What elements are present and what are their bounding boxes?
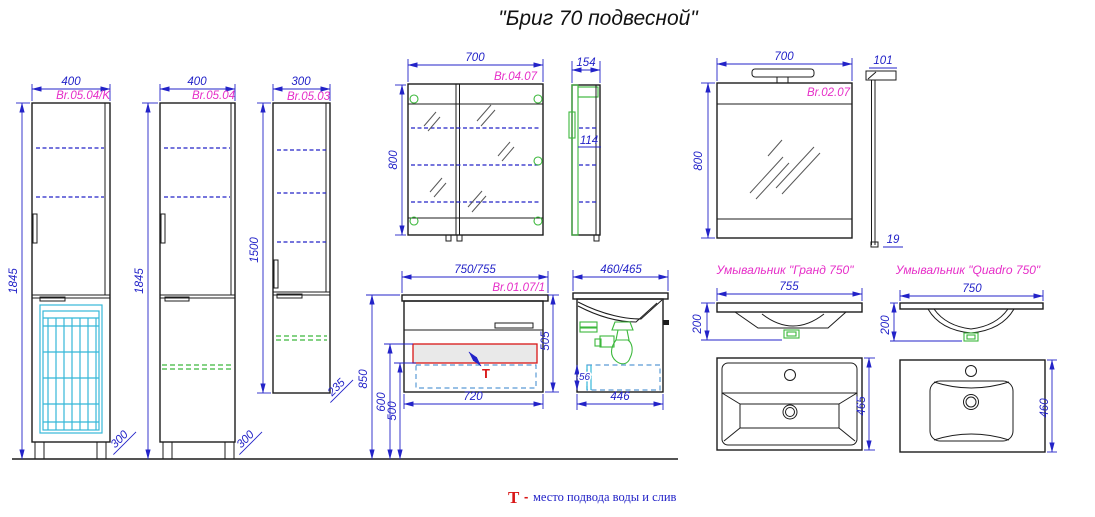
vanity-front: Т 750/755 Br.01.07/1 505 720 850 600 500 [358, 264, 559, 459]
vanity-mount-850: 850 [358, 369, 370, 389]
pencil-case-height: 1845 [134, 268, 146, 294]
mirror-thickness: 19 [887, 234, 900, 246]
mirror-cabinet-inner-dim: 114 [580, 135, 598, 147]
mirror-cabinet-width: 700 [465, 52, 485, 64]
mirror-cabinet-depth: 154 [576, 57, 595, 69]
basin-quadro-depth: 460 [1039, 398, 1051, 418]
technical-drawing-sheet: "Бриг 70 подвесной" 400 Br.05.04/ [0, 0, 1095, 517]
vanity-mount-500: 500 [387, 401, 399, 421]
basin-grand-title: Умывальник "Гранд 750" [716, 263, 855, 277]
legend-symbol: Т [508, 488, 520, 507]
side-drawer-outline [587, 365, 660, 390]
mirror-glass-hatch [424, 105, 514, 212]
mirror-cabinet-code: Br.04.07 [494, 71, 538, 83]
vanity-width: 750/755 [454, 264, 496, 276]
half-case-width: 300 [291, 76, 311, 88]
sheet-title: "Бриг 70 подвесной" [498, 7, 699, 30]
pencil-case-k-width: 400 [61, 76, 81, 88]
wall-bracket [663, 320, 669, 325]
legend-text: место подвода воды и слив [533, 490, 677, 504]
water-supply-zone [413, 344, 537, 363]
basin-quadro-height: 200 [880, 315, 892, 336]
mirror-width: 700 [774, 51, 794, 63]
pencil-case-view: 400 Br.05.04 1845 300 [134, 76, 262, 459]
basin-quadro-title: Умывальник "Quadro 750" [895, 263, 1041, 277]
laundry-basket [40, 305, 102, 433]
basin-quadro: Умывальник "Quadro 750" 750 200 460 [880, 263, 1057, 452]
basin-quadro-width: 750 [962, 283, 982, 295]
mirror-cabinet-front: 700 Br.04.07 800 [388, 52, 543, 241]
basin-grand-height: 200 [692, 314, 704, 335]
half-case-view: 300 Br.05.03 1500 235 [249, 76, 353, 403]
mirror-lamp [752, 69, 814, 83]
vanity-side-width: 460/465 [600, 264, 642, 276]
half-case-height: 1500 [249, 237, 261, 263]
mirror-hatch [750, 140, 820, 199]
mirror-side-depth: 101 [873, 55, 892, 67]
pencil-case-k-view: 400 Br.05.04/K 1845 300 [8, 76, 136, 459]
half-case-code: Br.05.03 [287, 91, 331, 103]
mirror-front: 700 Br.02.07 800 [693, 51, 852, 238]
mirror-cabinet-height: 800 [388, 150, 400, 170]
vanity-bottom-width: 720 [463, 391, 483, 403]
vanity-side-gap: 56 [579, 372, 591, 383]
legend-dash: - [524, 489, 528, 504]
vanity-code: Br.01.07/1 [492, 282, 545, 294]
half-case-depth-label: 235 [322, 371, 353, 402]
basin-grand: Умывальник "Гранд 750" 755 200 465 [692, 263, 875, 450]
pencil-case-width: 400 [187, 76, 207, 88]
siphon [595, 322, 633, 364]
basin-grand-width: 755 [779, 281, 799, 293]
vanity-side-bottom-width: 446 [610, 391, 630, 403]
legend: Т - место подвода воды и слив [508, 488, 677, 507]
vanity-height: 505 [540, 331, 552, 351]
t-mark: Т [482, 366, 490, 381]
hinge-marks [410, 95, 542, 225]
pencil-case-k-height: 1845 [8, 268, 20, 294]
mirror-code: Br.02.07 [807, 87, 851, 99]
mirror-cabinet-side: 154 114 [569, 57, 601, 241]
drawer-hidden-outline [416, 365, 536, 388]
basin-grand-depth: 465 [856, 396, 868, 416]
mirror-height: 800 [693, 151, 705, 171]
pencil-case-code: Br.05.04 [192, 90, 235, 102]
mirror-side: 101 19 [866, 55, 903, 247]
drawing-canvas: "Бриг 70 подвесной" 400 Br.05.04/ [0, 0, 1095, 517]
pencil-case-k-code: Br.05.04/K [56, 90, 111, 102]
vanity-side: 56 460/465 446 [573, 264, 669, 410]
